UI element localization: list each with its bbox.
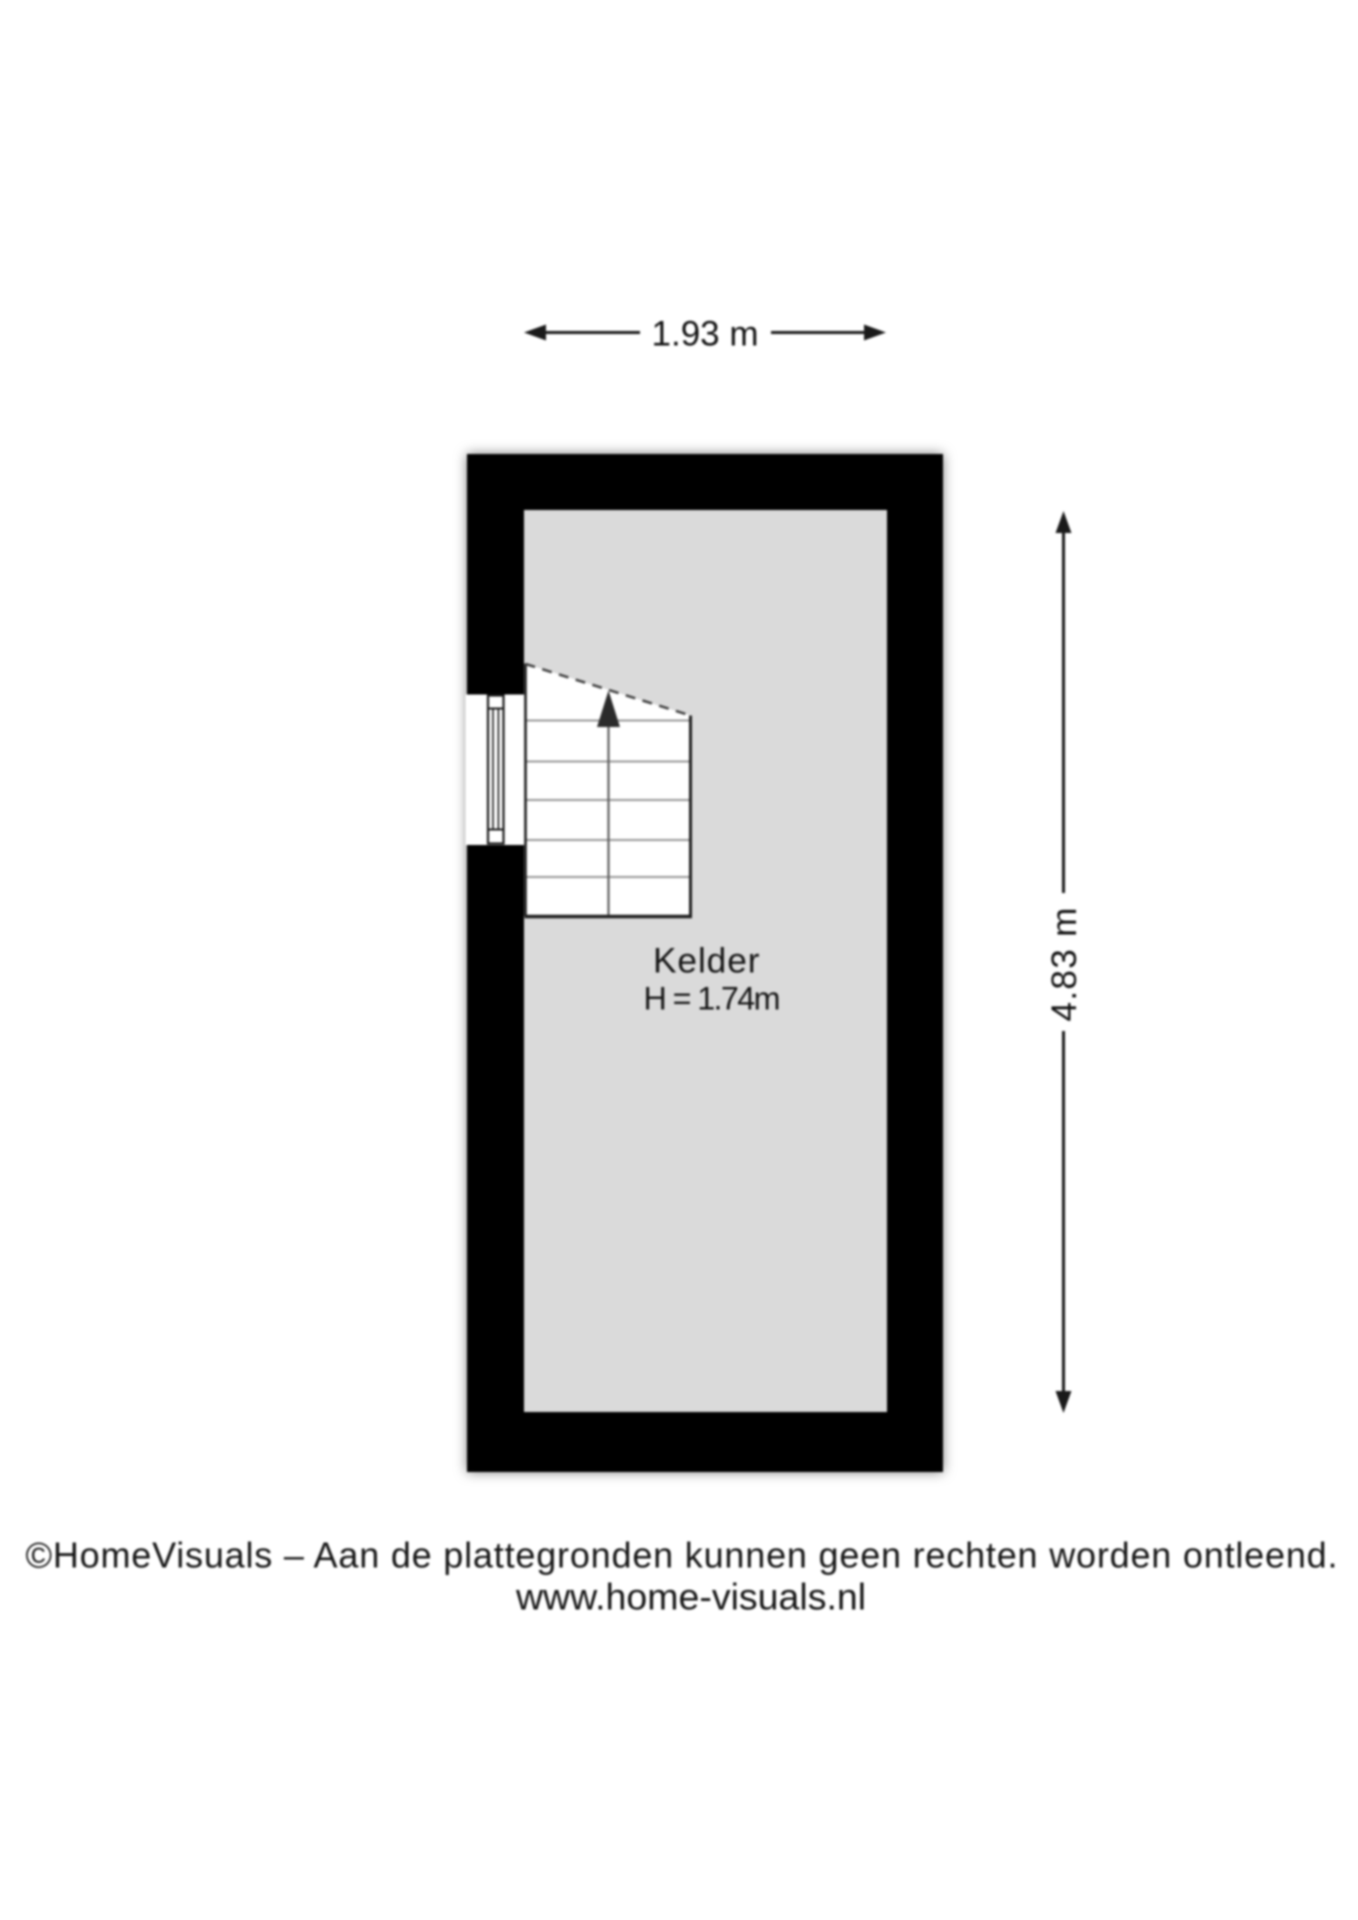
svg-text:4.83 m: 4.83 m xyxy=(1045,908,1084,1022)
svg-text:Kelder: Kelder xyxy=(653,942,760,981)
svg-text:H = 1.74m: H = 1.74m xyxy=(644,981,781,1017)
svg-text:1.93 m: 1.93 m xyxy=(652,315,759,354)
svg-text:www.home-visuals.nl: www.home-visuals.nl xyxy=(515,1576,866,1618)
svg-text:©HomeVisuals – Aan de plattegr: ©HomeVisuals – Aan de plattegronden kunn… xyxy=(26,1535,1338,1576)
